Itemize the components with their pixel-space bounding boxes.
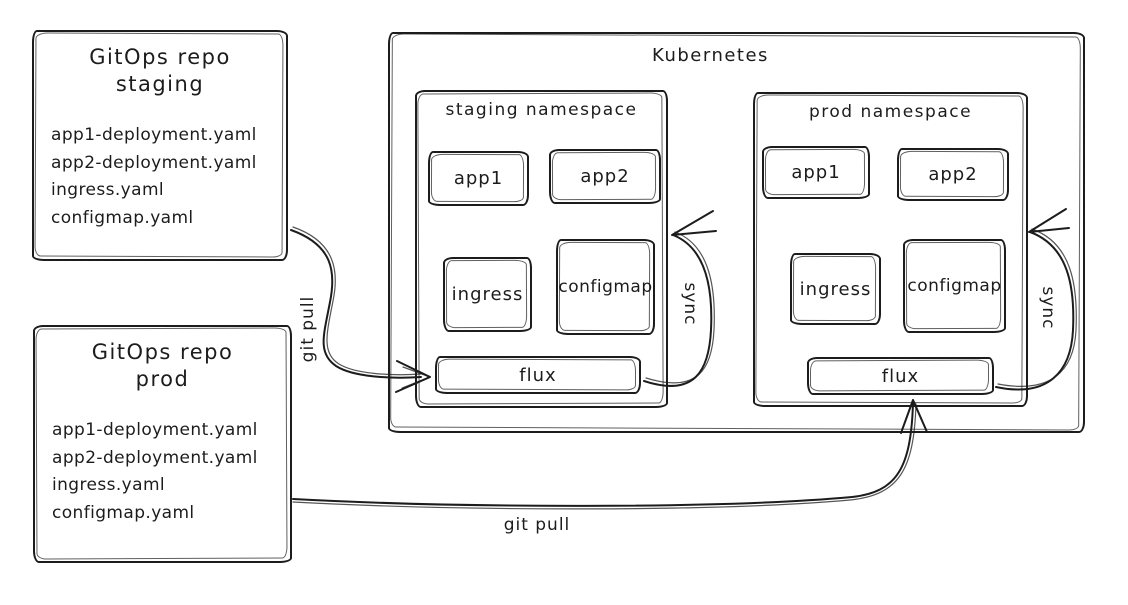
prod-app2-box: app2 [897,148,1009,201]
prod-git-pull-label: git pull [497,515,577,535]
file-item: app2-deployment.yaml [51,150,286,178]
staging-flux-box: flux [435,356,641,394]
staging-app2-box: app2 [549,149,661,204]
prod-sync-label: sync [1038,283,1058,333]
file-item: app1-deployment.yaml [51,122,286,150]
file-item: app1-deployment.yaml [52,417,290,445]
gitops-repo-prod-box: GitOps repo prod app1-deployment.yaml ap… [33,325,292,563]
file-item: app2-deployment.yaml [52,445,290,473]
file-item: configmap.yaml [52,500,290,528]
staging-app1-box: app1 [428,151,529,206]
prod-app1-box: app1 [762,146,870,199]
file-item: ingress.yaml [52,472,290,500]
repo-title-line1: GitOps repo [35,339,290,366]
gitops-repo-prod-title: GitOps repo prod [35,327,290,393]
file-item: ingress.yaml [51,177,286,205]
staging-git-pull-label: git pull [298,289,318,369]
gitops-repo-staging-box: GitOps repo staging app1-deployment.yaml… [32,30,288,261]
prod-namespace-title: prod namespace [755,94,1026,122]
staging-sync-label: sync [680,279,700,329]
gitops-repo-staging-files: app1-deployment.yaml app2-deployment.yam… [51,122,286,232]
staging-configmap-box: configmap [556,239,655,335]
repo-title-line2: staging [34,71,286,98]
kubernetes-cluster-title: Kubernetes [362,45,1059,66]
diagram-canvas: GitOps repo staging app1-deployment.yaml… [0,0,1128,605]
file-item: configmap.yaml [51,205,286,233]
staging-ingress-box: ingress [443,257,532,332]
gitops-repo-prod-files: app1-deployment.yaml app2-deployment.yam… [52,417,290,527]
prod-ingress-box: ingress [790,253,881,325]
prod-flux-box: flux [807,357,994,395]
repo-title-line1: GitOps repo [34,44,286,71]
repo-title-line2: prod [35,366,290,393]
gitops-repo-staging-title: GitOps repo staging [34,32,286,98]
prod-configmap-box: configmap [903,239,1006,333]
staging-namespace-title: staging namespace [417,92,666,120]
